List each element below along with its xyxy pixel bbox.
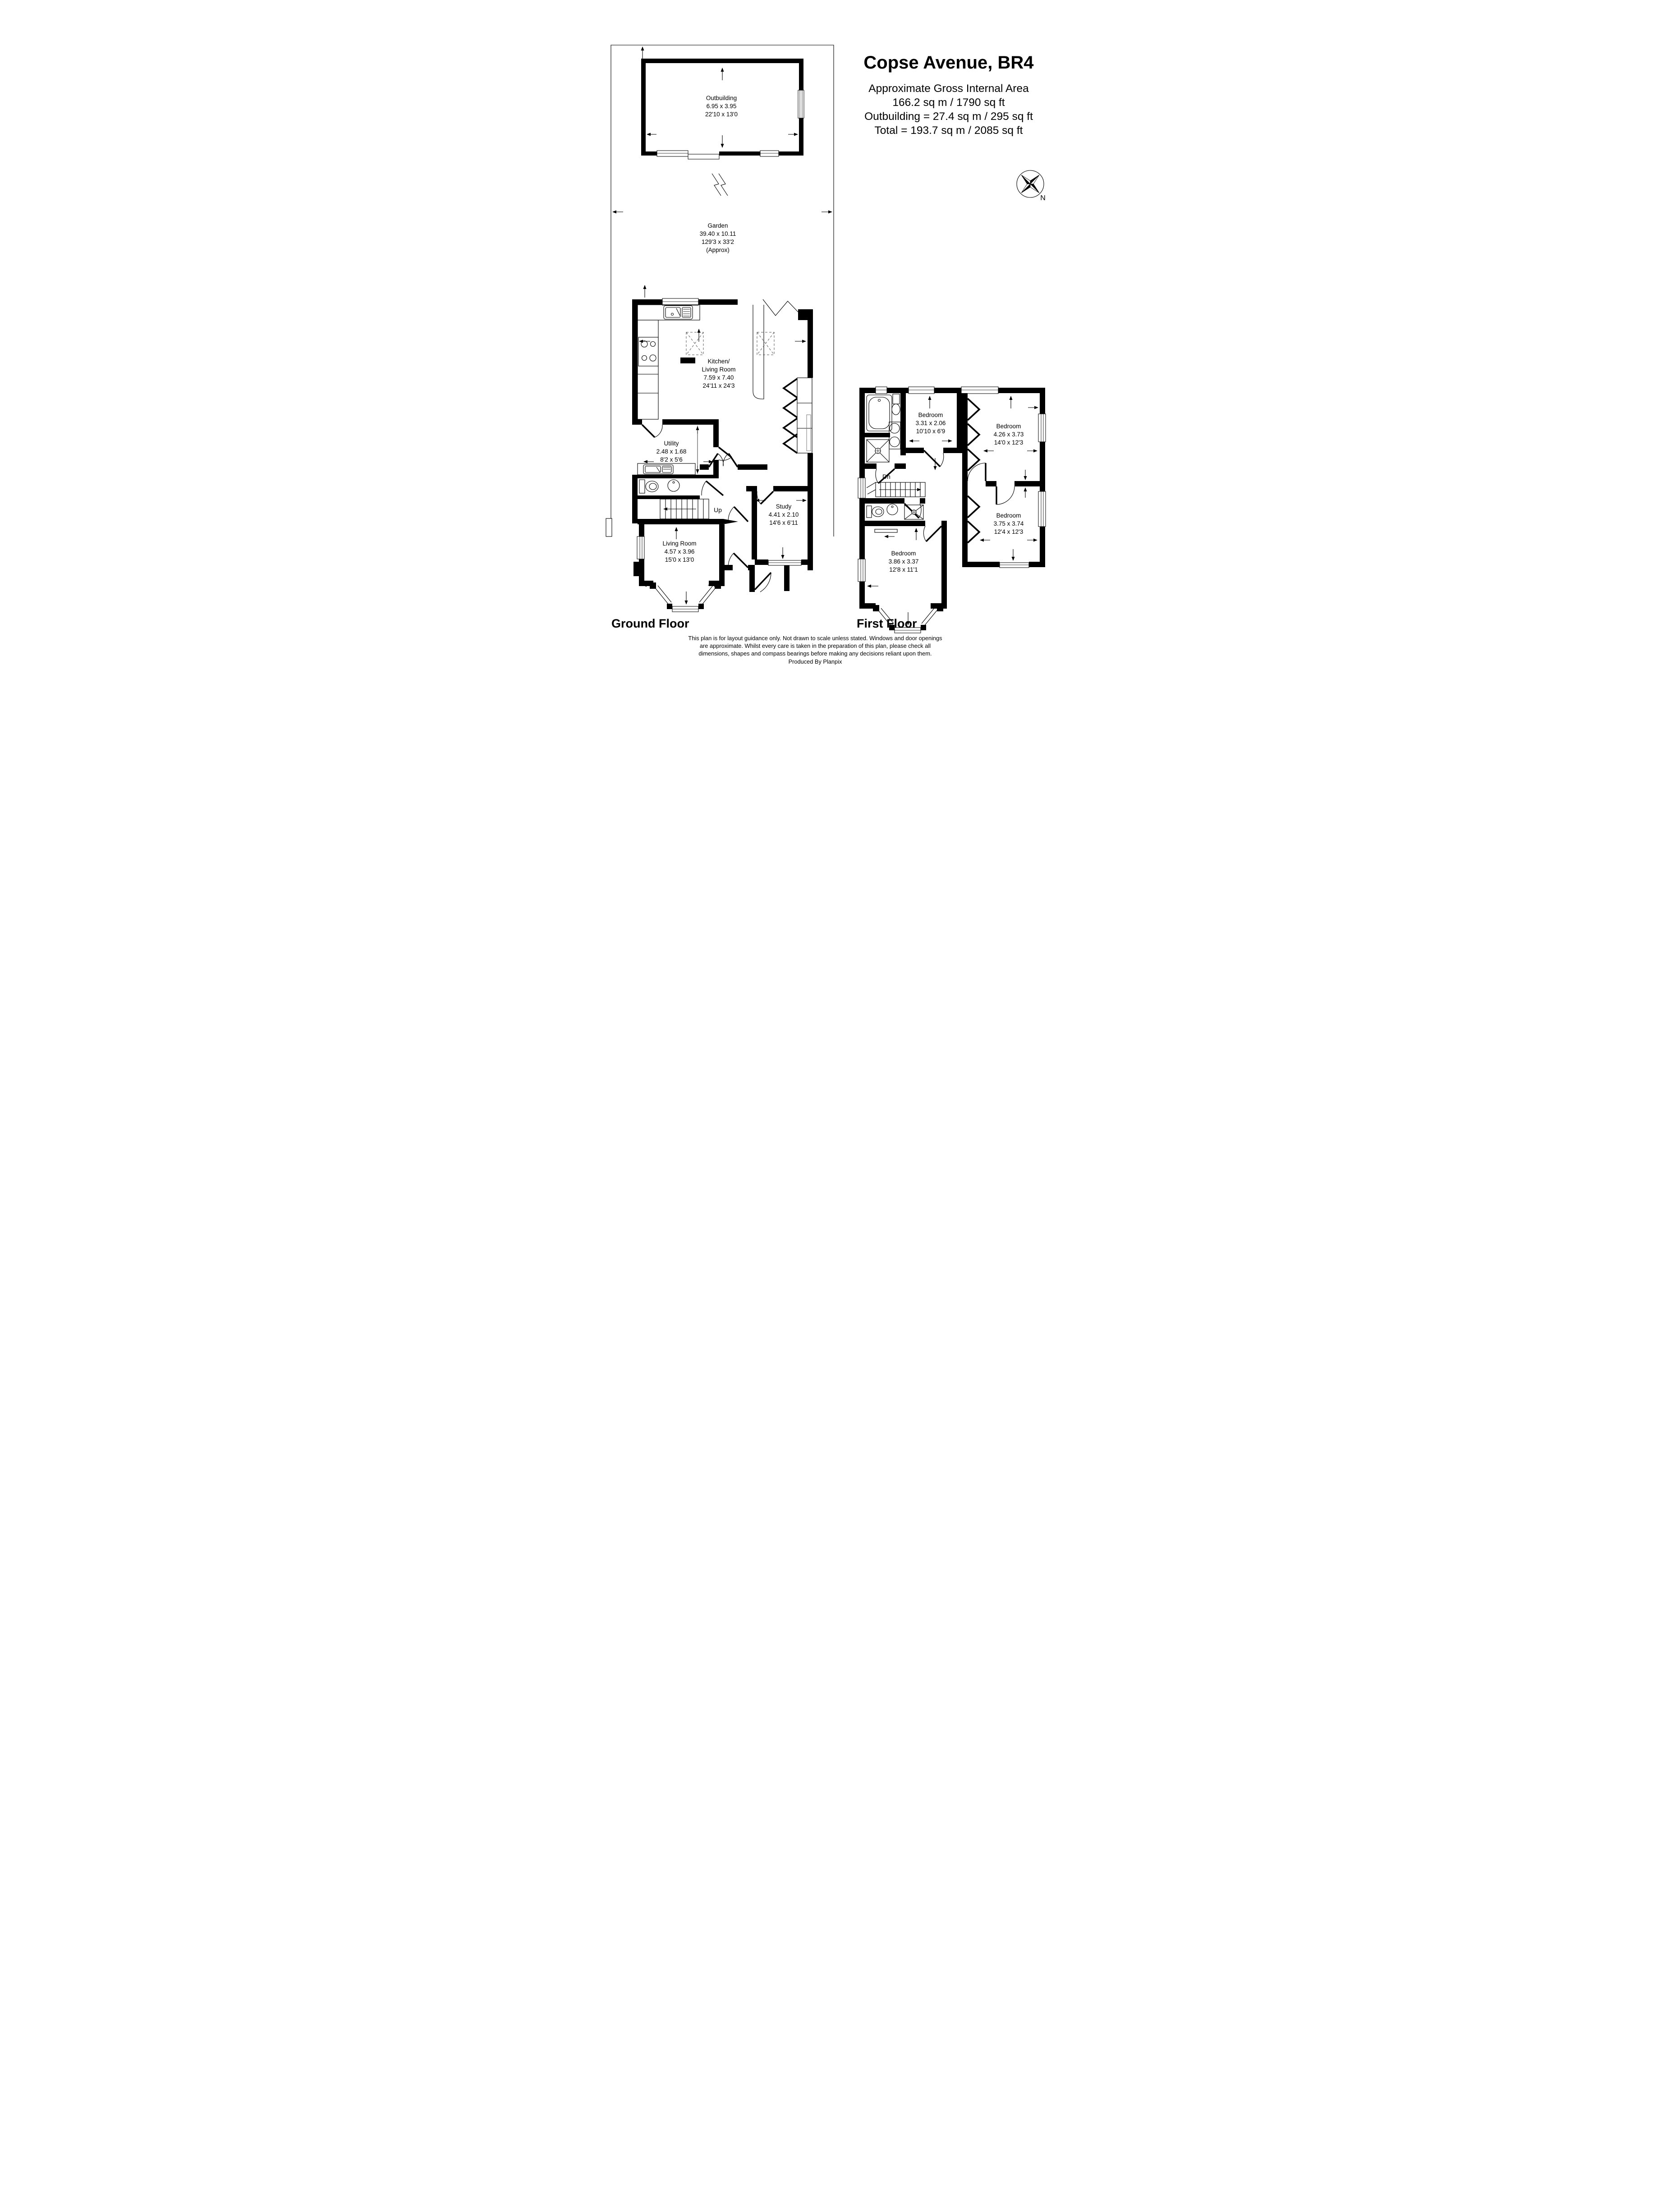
bedroom1-door-leaf [924, 450, 940, 467]
kitchen-name-2: Living Room [702, 366, 735, 373]
front-door-leaf [734, 553, 748, 568]
title-block: Copse Avenue, BR4 Approximate Gross Inte… [863, 53, 1034, 137]
outbuilding-window-right [798, 90, 804, 118]
wardrobe-bifold-icon [968, 521, 979, 543]
livingroom-name: Living Room [662, 540, 696, 547]
bedroom2-window-top [961, 387, 998, 394]
bedroom4-door-leaf [926, 526, 941, 541]
first-floor-label: First Floor [857, 617, 917, 630]
fireplace [680, 358, 695, 363]
utility-dims-m: 2.48 x 1.68 [656, 448, 687, 455]
wardrobe-bifold-icon [968, 399, 979, 420]
bedroom3-name: Bedroom [996, 512, 1021, 519]
wc-basin-icon [668, 480, 679, 491]
outbuilding-dims-m: 6.95 x 3.95 [707, 103, 737, 110]
bedroom4-name: Bedroom [891, 550, 916, 557]
outbuilding-door [688, 154, 719, 159]
skylight-icon [686, 332, 703, 355]
porch-door-leaf [755, 573, 771, 590]
kitchen-sink-icon [664, 306, 693, 319]
landing-window [858, 478, 865, 498]
kitchen-dims-ft: 24'11 x 24'3 [703, 382, 735, 389]
toilet-icon [892, 394, 900, 415]
disclaimer-line-1: This plan is for layout guidance only. N… [688, 635, 942, 642]
garden-approx: (Approx) [706, 247, 730, 253]
garden-dims-ft: 129'3 x 33'2 [702, 238, 734, 245]
stairs-up-label: Up [714, 506, 722, 514]
hall-door-leaf [734, 507, 748, 522]
chimney-breast [633, 562, 639, 576]
kitchen-storage [797, 378, 812, 453]
wardrobe-bifold-icon [968, 496, 979, 518]
outbuilding: Outbuilding 6.95 x 3.95 22'10 x 13'0 [641, 59, 804, 159]
compass-icon: N [1017, 170, 1046, 202]
garden-dims-m: 39.40 x 10.11 [700, 230, 736, 237]
livingroom-window-left [637, 536, 644, 559]
study-dims-ft: 14'6 x 6'11 [769, 519, 798, 526]
utility-door-leaf [642, 425, 655, 437]
shower2-icon [904, 505, 923, 519]
page-title: Copse Avenue, BR4 [863, 53, 1034, 73]
kitchen-counter-left [638, 320, 658, 419]
kitchen-counter-top [638, 305, 700, 320]
ground-floor-plan: Kitchen/ Living Room 7.59 x 7.40 24'11 x… [632, 285, 813, 612]
bedroom1-dims-ft: 10'10 x 6'9 [916, 428, 945, 435]
stairs-up [660, 499, 709, 519]
showerroom-door-leaf [904, 504, 919, 518]
bedroom3-dims-ft: 12'4 x 12'3 [994, 528, 1023, 535]
wardrobe-bifold-icon [968, 424, 979, 445]
outbuilding-area: Outbuilding = 27.4 sq m / 295 sq ft [864, 110, 1033, 123]
wc-door-leaf [706, 481, 723, 495]
kitchen-window [662, 298, 698, 305]
total-area: Total = 193.7 sq m / 2085 sq ft [875, 124, 1023, 137]
open-wall-zigzag [763, 299, 798, 316]
gia-value: 166.2 sq m / 1790 sq ft [892, 96, 1005, 109]
bathroom-window [876, 387, 887, 394]
bifold-door-icon [784, 418, 797, 437]
outbuilding-window-bottom-2 [760, 151, 779, 156]
bedroom2-dims-ft: 14'0 x 12'3 [994, 439, 1023, 446]
bifold-door-icon [784, 379, 797, 398]
disclaimer-line-4: Produced By Planpix [789, 658, 842, 665]
outbuilding-name: Outbuilding [706, 95, 737, 101]
first-floor-plan: Bedroom 3.31 x 2.06 10'10 x 6'9 Bedroom … [858, 387, 1046, 633]
bath-icon [867, 395, 892, 431]
bedroom1-window [909, 387, 934, 394]
ground-floor-label: Ground Floor [611, 617, 689, 630]
twin-basins-icon [889, 422, 900, 449]
study-door-leaf [761, 491, 773, 504]
stairs-down-label: Dn [882, 473, 890, 480]
floorplan-drawing: Copse Avenue, BR4 Approximate Gross Inte… [560, 0, 1120, 729]
north-label: N [1040, 194, 1046, 202]
wc-toilet-icon [639, 480, 658, 493]
study-dims-m: 4.41 x 2.10 [769, 511, 799, 518]
shower-icon [867, 440, 889, 462]
skylight-icon [757, 332, 774, 355]
bay-window [650, 582, 721, 612]
bedroom1-name: Bedroom [918, 412, 943, 418]
bedroom4-dims-m: 3.86 x 3.37 [889, 558, 919, 565]
kitchen-dims-m: 7.59 x 7.40 [704, 374, 734, 381]
outbuilding-dims-ft: 22'10 x 13'0 [705, 111, 738, 118]
bifold-door-icon [784, 399, 797, 417]
toilet2-icon [867, 506, 884, 518]
disclaimer-line-2: are approximate. Whilst every care is ta… [700, 642, 931, 649]
study-window [768, 560, 801, 565]
livingroom-dims-ft: 15'0 x 13'0 [665, 556, 694, 563]
outbuilding-window-bottom-1 [657, 151, 688, 156]
kitchen-peninsula [753, 305, 764, 399]
bedroom3-window-right [1038, 491, 1046, 527]
utility-dims-ft: 8'2 x 5'6 [660, 456, 682, 463]
garden-gate [606, 518, 612, 536]
stairs-down [867, 482, 925, 497]
hob-icon [638, 337, 658, 366]
bifold-door-icon [784, 434, 797, 453]
bedroom3-dims-m: 3.75 x 3.74 [994, 520, 1024, 527]
bedroom4-window-left [858, 559, 865, 582]
utility-counter [638, 463, 695, 475]
bedroom2-dims-m: 4.26 x 3.73 [994, 431, 1024, 438]
basin2-icon [887, 504, 898, 515]
bedroom2-name: Bedroom [996, 423, 1021, 430]
bedroom2-window-right [1038, 414, 1046, 442]
radiator [875, 529, 897, 532]
disclaimer-line-3: dimensions, shapes and compass bearings … [698, 650, 932, 657]
kitchen-name-1: Kitchen/ [708, 358, 730, 365]
footer: Ground Floor First Floor This plan is fo… [611, 617, 942, 665]
gia-heading: Approximate Gross Internal Area [868, 83, 1029, 95]
garden-name: Garden [707, 222, 728, 229]
bedroom3-window-bottom [1000, 563, 1029, 568]
floorplan-page: Copse Avenue, BR4 Approximate Gross Inte… [560, 0, 1120, 729]
bedroom1-dims-m: 3.31 x 2.06 [916, 420, 946, 426]
study-name: Study [776, 503, 792, 510]
utility-sink-icon [643, 465, 673, 474]
livingroom-dims-m: 4.57 x 3.96 [665, 548, 695, 555]
bedroom4-dims-ft: 12'8 x 11'1 [889, 566, 918, 573]
utility-name: Utility [664, 440, 679, 447]
french-door-leaf [729, 454, 738, 467]
